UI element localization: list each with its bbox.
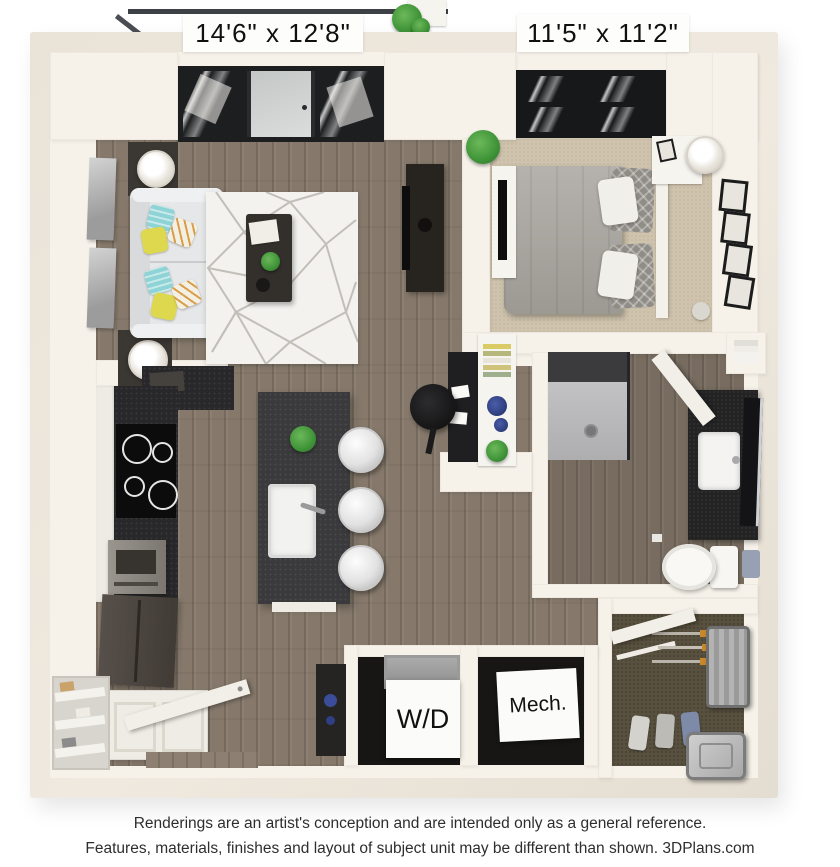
bedroom-plant — [466, 130, 500, 164]
wall-art-bedroom-4 — [724, 274, 756, 310]
oven-handle — [114, 582, 158, 586]
living-room-dimension-label: 14'6" x 12'8" — [183, 14, 363, 52]
mechanical-unit: Mech. — [496, 668, 580, 742]
wall-art-bedroom-2 — [720, 210, 751, 245]
coffee-table-book — [249, 219, 280, 245]
bookshelf-decor-blue — [324, 694, 337, 707]
bar-stool-1 — [338, 427, 384, 473]
bedroom-window — [516, 70, 666, 138]
bar-stool-3 — [338, 545, 384, 591]
wall-bathroom-left — [532, 352, 548, 598]
patio-door-pane-right — [320, 71, 379, 137]
bedroom-dimension-text: 11'5" x 11'2" — [527, 18, 679, 49]
wall-art-living-2 — [87, 248, 117, 329]
shelf-book — [483, 365, 511, 370]
throw-pillow-yellow-1 — [140, 226, 169, 255]
tv-screen — [402, 186, 410, 270]
shower-drain — [584, 424, 598, 438]
wall-utility-right-post — [584, 645, 598, 766]
refrigerator — [98, 594, 179, 688]
shower-glass-wall — [548, 352, 630, 382]
wall-utility-left-post — [344, 645, 358, 766]
cooktop — [116, 424, 176, 518]
wall-closet-left — [598, 598, 612, 778]
mechanical-label: Mech. — [509, 692, 567, 719]
patio-doors — [178, 66, 384, 142]
toilet-paper-holder — [652, 534, 662, 542]
vanity-faucet — [732, 456, 740, 464]
niche-towels — [734, 340, 758, 364]
bedroom-tv — [498, 180, 507, 260]
wall-art-bedroom-3 — [722, 242, 753, 277]
washer-dryer-unit: W/D — [386, 680, 460, 758]
bookshelf-decor-blue-2 — [326, 716, 335, 725]
suitcase-flat — [686, 732, 746, 780]
glass-reflection — [184, 74, 231, 124]
shelf-plant — [486, 440, 508, 462]
disclaimer-line1: Renderings are an artist's conception an… — [0, 812, 840, 837]
suitcase-upright — [706, 626, 750, 708]
bathroom-trash-bin — [742, 550, 760, 578]
hanging-shirt-gray-2 — [655, 713, 675, 748]
entry-bookshelf — [316, 664, 346, 756]
wall-living-bedroom-divider — [462, 138, 490, 334]
bar-stool-2 — [338, 487, 384, 533]
coffee-table-plant — [261, 252, 280, 271]
wall-oven — [108, 540, 166, 594]
office-chair — [410, 384, 456, 430]
washer-dryer-label: W/D — [397, 704, 449, 735]
burner-small-2 — [124, 476, 145, 497]
bed-pillow-white-bottom — [597, 250, 639, 301]
wall-art-bedroom-1 — [718, 179, 748, 214]
window-pane — [594, 107, 661, 133]
shelf-bowl-blue-large — [487, 396, 507, 416]
shelf-book — [483, 344, 511, 349]
bed-headboard — [656, 162, 668, 318]
oven-window — [116, 550, 156, 574]
desk-shelf-halfwall — [478, 334, 516, 466]
window-pane — [594, 76, 661, 102]
bedroom-dimension-label: 11'5" x 11'2" — [517, 14, 689, 52]
table-lamp-top — [137, 150, 175, 188]
tv-console-decor — [418, 218, 432, 232]
patio-door-handle — [302, 105, 307, 110]
patio-door-pane-center — [247, 71, 314, 137]
shelf-book — [483, 372, 511, 377]
wall-top-mid — [384, 52, 516, 140]
nightstand-lamp — [686, 136, 724, 174]
living-room-dimension-text: 14'6" x 12'8" — [195, 18, 351, 49]
bedroom-bin — [692, 302, 710, 320]
island-sink — [268, 484, 316, 558]
floorplan-3d-render: 14'6" x 12'8" 11'5" x 11'2" — [0, 0, 840, 810]
wall-top-left — [50, 52, 178, 140]
bed-pillow-white-top — [597, 176, 639, 227]
glass-reflection — [326, 76, 373, 127]
window-pane — [522, 76, 589, 102]
coffee-table-bowl — [256, 278, 270, 292]
disclaimer-line2: Features, materials, finishes and layout… — [0, 837, 840, 862]
shoe-pair — [60, 681, 75, 692]
shower-glass-edge — [627, 352, 630, 460]
disclaimer: Renderings are an artist's conception an… — [0, 812, 840, 861]
shelf-bowl-blue-small — [494, 418, 508, 432]
burner-large-2 — [148, 480, 178, 510]
fridge-door-split — [134, 600, 141, 682]
burner-large-1 — [122, 434, 152, 464]
toilet-bowl — [662, 544, 716, 590]
wall-utility-divider — [460, 645, 478, 766]
window-pane — [522, 107, 589, 133]
shower — [548, 352, 630, 460]
burner-small-1 — [152, 442, 173, 463]
shoe-pair — [62, 737, 77, 748]
island-plant — [290, 426, 316, 452]
shower-pan — [548, 382, 630, 460]
entry-door-knob — [237, 686, 243, 692]
shoe-closet — [52, 676, 110, 770]
entry-threshold — [146, 752, 258, 768]
shoe-pair — [76, 707, 91, 718]
bed — [504, 164, 666, 316]
island-base-reveal — [272, 602, 336, 612]
patio-door-pane-left — [183, 71, 242, 137]
wall-art-living-1 — [87, 158, 117, 241]
closet-corridor-floor — [532, 598, 598, 650]
shelf-book — [483, 351, 511, 356]
shelf-book — [483, 358, 511, 363]
sofa-back-cushion — [130, 194, 150, 332]
